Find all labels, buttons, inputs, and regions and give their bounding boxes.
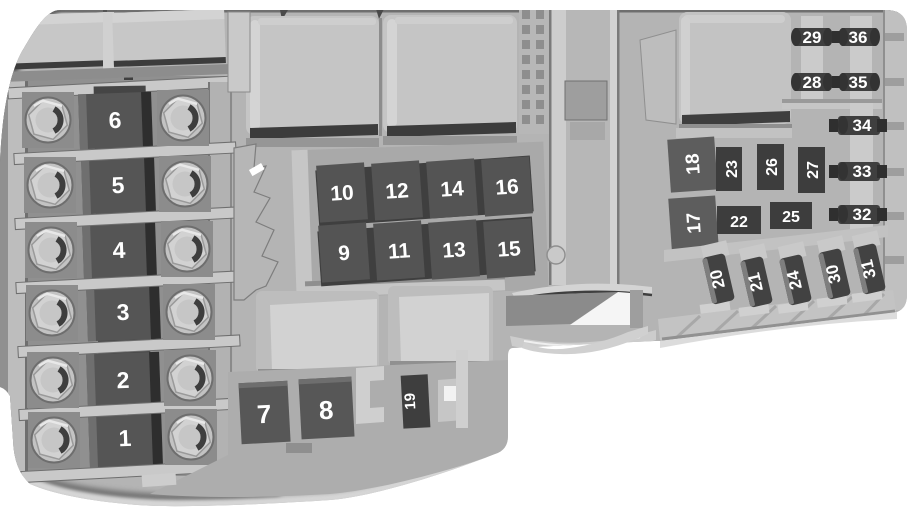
svg-text:1: 1 [118, 425, 132, 451]
svg-text:16: 16 [495, 175, 520, 200]
svg-text:23: 23 [724, 160, 741, 178]
svg-text:11: 11 [387, 239, 411, 264]
svg-text:35: 35 [849, 73, 868, 92]
svg-text:13: 13 [442, 238, 467, 263]
svg-text:5: 5 [111, 172, 125, 198]
svg-text:18: 18 [682, 153, 704, 176]
svg-text:6: 6 [108, 107, 122, 133]
svg-text:34: 34 [853, 116, 872, 135]
svg-text:8: 8 [318, 395, 334, 426]
svg-text:25: 25 [782, 209, 800, 226]
svg-text:15: 15 [497, 237, 522, 262]
svg-text:10: 10 [330, 181, 355, 206]
svg-text:14: 14 [440, 177, 465, 202]
svg-text:28: 28 [803, 73, 822, 92]
svg-text:33: 33 [853, 162, 872, 181]
svg-text:3: 3 [116, 299, 130, 325]
svg-text:7: 7 [256, 399, 272, 430]
svg-text:4: 4 [112, 237, 126, 263]
svg-text:19: 19 [402, 392, 420, 410]
svg-text:29: 29 [803, 28, 822, 47]
svg-text:22: 22 [730, 214, 748, 231]
svg-text:12: 12 [385, 179, 410, 204]
svg-text:36: 36 [849, 28, 868, 47]
svg-text:32: 32 [853, 205, 872, 224]
svg-text:26: 26 [764, 158, 781, 176]
svg-text:17: 17 [683, 212, 705, 235]
svg-text:9: 9 [337, 242, 350, 266]
svg-text:27: 27 [805, 161, 822, 179]
svg-text:2: 2 [116, 367, 130, 393]
